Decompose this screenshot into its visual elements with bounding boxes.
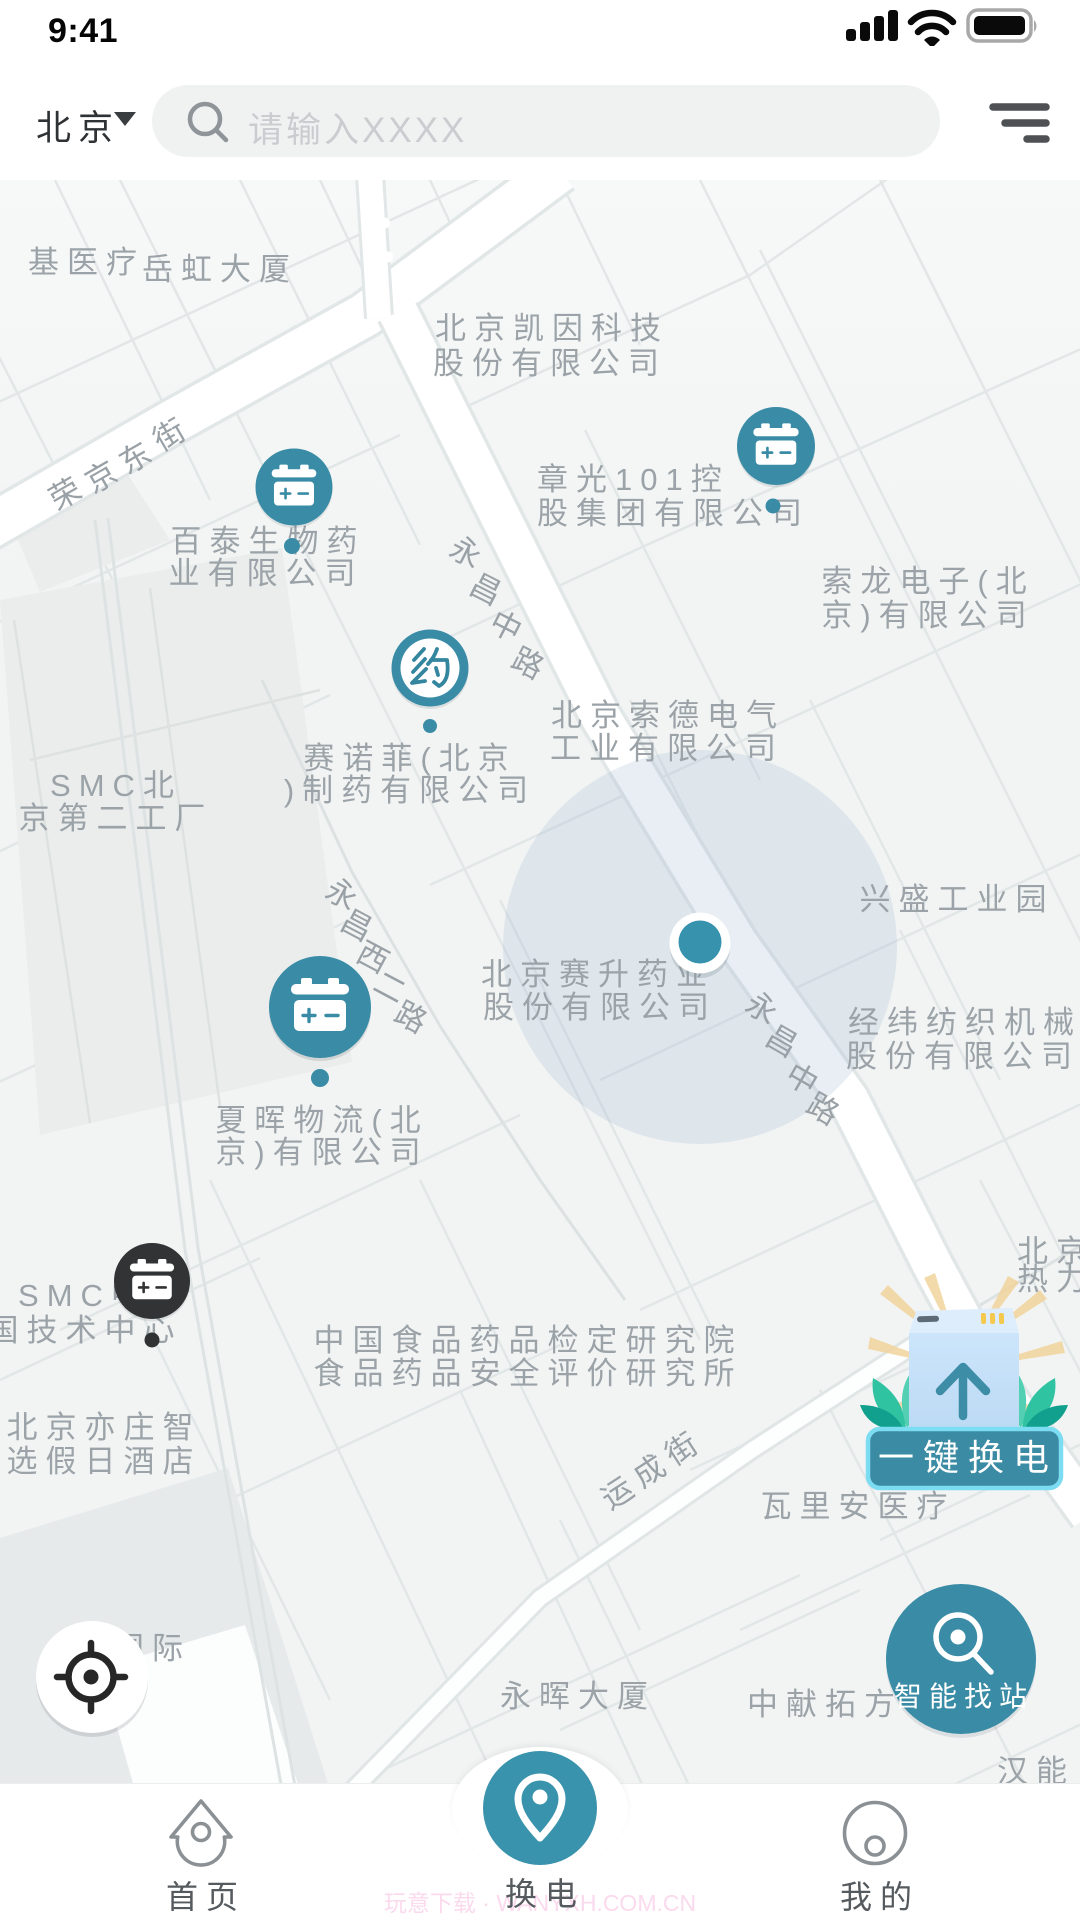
- svg-text:)制药有限公司: )制药有限公司: [284, 773, 536, 808]
- svg-text:食品药品安全评价研究所: 食品药品安全评价研究所: [314, 1356, 743, 1391]
- svg-text:岳虹大厦: 岳虹大厦: [142, 252, 298, 287]
- svg-text:北京凯因科技: 北京凯因科技: [435, 311, 669, 346]
- svg-text:百泰生物药: 百泰生物药: [171, 524, 366, 559]
- svg-text:智能找站: 智能找站: [894, 1681, 1034, 1712]
- svg-text:章光101控: 章光101控: [537, 462, 730, 497]
- svg-text:北京亦庄智: 北京亦庄智: [7, 1410, 202, 1445]
- svg-text:京)有限公司: 京)有限公司: [821, 598, 1034, 633]
- svg-text:基医疗: 基医疗: [28, 245, 145, 280]
- svg-text:工业有限公司: 工业有限公司: [550, 731, 784, 766]
- svg-text:热力: 热力: [1017, 1262, 1080, 1297]
- svg-text:兴盛工业园: 兴盛工业园: [860, 882, 1055, 917]
- svg-text:京)有限公司: 京)有限公司: [215, 1135, 428, 1170]
- svg-text:夏晖物流(北: 夏晖物流(北: [215, 1103, 428, 1138]
- svg-text:北京索德电气: 北京索德电气: [551, 698, 785, 733]
- svg-text:业有限公司: 业有限公司: [169, 556, 364, 591]
- svg-text:选假日酒店: 选假日酒店: [7, 1444, 202, 1479]
- svg-text:中国食品药品检定研究院: 中国食品药品检定研究院: [314, 1323, 743, 1358]
- svg-text:永晖大厦: 永晖大厦: [500, 1679, 656, 1714]
- svg-text:股份有限公司: 股份有限公司: [846, 1039, 1080, 1074]
- svg-text:经纬纺织机械: 经纬纺织机械: [848, 1005, 1080, 1040]
- svg-text:股份有限公司: 股份有限公司: [483, 990, 717, 1025]
- svg-text:中献拓方: 中献拓方: [747, 1687, 903, 1722]
- svg-text:股份有限公司: 股份有限公司: [433, 346, 667, 381]
- svg-text:瓦里安医疗: 瓦里安医疗: [761, 1489, 956, 1524]
- svg-text:京第二工厂: 京第二工厂: [19, 801, 214, 836]
- svg-text:索龙电子(北: 索龙电子(北: [821, 564, 1034, 599]
- svg-text:一键换电: 一键换电: [878, 1437, 1058, 1478]
- svg-text:SMC北: SMC北: [50, 768, 182, 803]
- svg-text:赛诺菲(北京: 赛诺菲(北京: [303, 741, 516, 776]
